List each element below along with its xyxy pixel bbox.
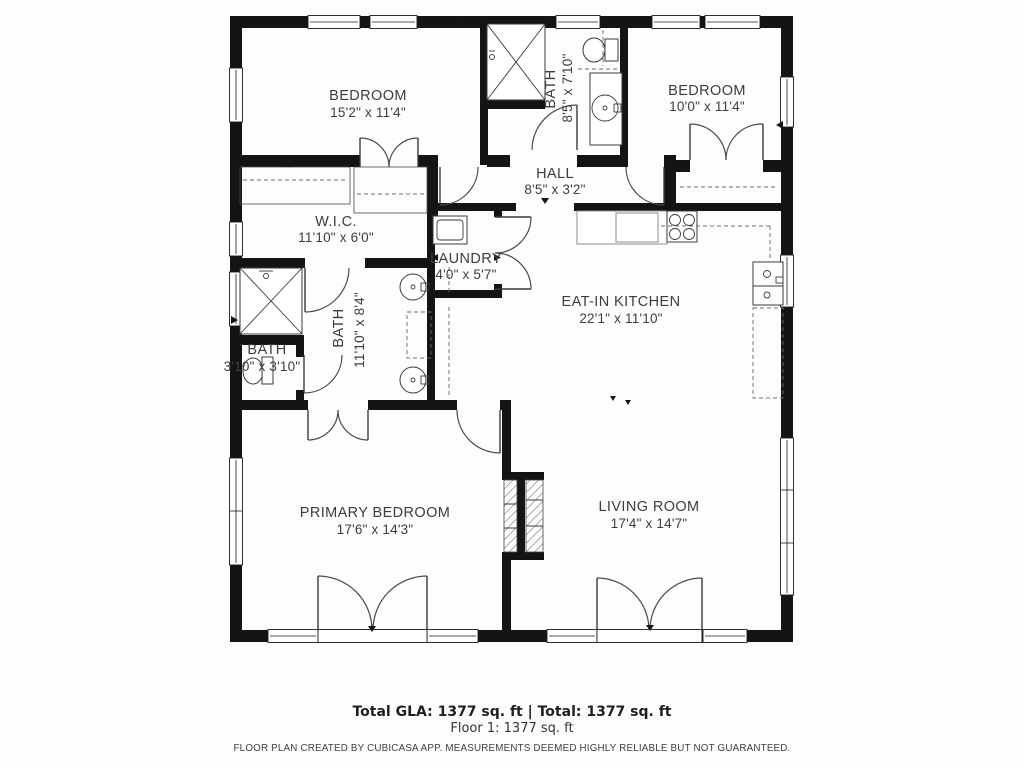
wall-segment — [368, 400, 457, 410]
patio-double-door — [597, 578, 702, 630]
room-label-laundry: LAUNDRY — [430, 251, 502, 267]
footer: Total GLA: 1377 sq. ft | Total: 1377 sq.… — [234, 704, 791, 754]
room-dims-living: 17'4" x 14'7" — [611, 516, 688, 531]
wall-segment — [427, 290, 502, 298]
wall-segment — [487, 155, 510, 167]
wall-segment — [502, 400, 511, 475]
room-dims-kitchen: 22'1" x 11'10" — [579, 311, 662, 326]
floor-plan-page: BEDROOM 15'2" x 11'4" BATH 8'5" x 7'10" … — [0, 0, 1024, 768]
room-label-kitchen: EAT-IN KITCHEN — [562, 294, 681, 310]
room-label-hall: HALL — [536, 166, 574, 182]
room-label-bedroom1: BEDROOM — [329, 88, 407, 104]
closet — [240, 167, 350, 204]
disclaimer-text: FLOOR PLAN CREATED BY CUBICASA APP. MEAS… — [234, 743, 791, 754]
direction-marker — [610, 396, 616, 401]
room-dims-laundry: 4'0" x 5'7" — [435, 267, 496, 282]
direction-marker — [541, 198, 549, 204]
floor-plan-drawing: BEDROOM 15'2" x 11'4" BATH 8'5" x 7'10" … — [0, 0, 1024, 768]
wall-segment — [664, 155, 676, 211]
room-dims-hall: 8'5" x 3'2" — [524, 182, 585, 197]
double-door — [308, 410, 368, 440]
door-threshold — [318, 630, 427, 643]
room-dims-bath1: 8'5" x 7'10" — [560, 54, 575, 123]
counter-dashed — [753, 308, 783, 398]
room-label-bedroom2: BEDROOM — [668, 83, 746, 99]
kitchen-sink-icon — [753, 262, 783, 305]
wall-segment — [418, 155, 438, 167]
room-dims-primary: 17'6" x 14'3" — [337, 522, 414, 537]
wall-segment — [428, 203, 516, 211]
closet-double-door — [360, 138, 418, 167]
wall-segment — [502, 557, 511, 632]
door — [457, 410, 500, 453]
stairs-flight — [504, 480, 517, 552]
stairs-flight — [526, 480, 543, 552]
room-label-living: LIVING ROOM — [598, 499, 699, 515]
wall-segment — [236, 400, 308, 410]
room-label-bath1: BATH — [543, 69, 559, 108]
room-dims-bath3: 3'10" x 3'10" — [224, 359, 301, 374]
wall-segment — [517, 478, 525, 554]
room-label-primary: PRIMARY BEDROOM — [300, 505, 451, 521]
stove-icon — [667, 211, 697, 242]
direction-marker — [776, 121, 783, 129]
laundry-fixtures — [433, 216, 467, 244]
room-label-bath3: BATH — [247, 342, 286, 358]
kitchen-appliance — [616, 213, 658, 242]
room-dims-wic: 11'10" x 6'0" — [298, 230, 374, 245]
closet — [354, 167, 427, 213]
toilet-icon — [583, 38, 618, 62]
room-label-wic: W.I.C. — [315, 214, 357, 230]
wall-segment — [236, 155, 360, 167]
floor-area-text: Floor 1: 1377 sq. ft — [450, 721, 573, 736]
wall-segment — [483, 100, 545, 109]
room-label-bath2: BATH — [331, 308, 347, 347]
wall-segment — [676, 160, 690, 172]
shower-icon — [240, 268, 302, 334]
wall-segment — [494, 203, 502, 217]
door — [305, 268, 349, 312]
room-dims-bedroom1: 15'2" x 11'4" — [330, 105, 406, 120]
wall-segment — [431, 167, 438, 217]
direction-marker — [625, 400, 631, 405]
shower-icon — [487, 24, 545, 100]
door — [626, 167, 664, 205]
total-area-text: Total GLA: 1377 sq. ft | Total: 1377 sq.… — [352, 704, 671, 720]
washer-icon — [433, 216, 467, 244]
door — [304, 355, 342, 393]
patio-double-door — [318, 576, 427, 630]
wall-segment — [664, 203, 793, 211]
door — [440, 167, 478, 205]
room-dims-bath2: 11'10" x 8'4" — [352, 292, 367, 368]
wall-segment — [365, 258, 435, 268]
wall-segment — [236, 258, 305, 268]
closet-double-door — [690, 124, 763, 160]
door-threshold — [597, 630, 702, 643]
room-dims-bedroom2: 10'0" x 11'4" — [669, 99, 745, 114]
wall-segment — [296, 335, 304, 357]
bathroom-sink-icon — [400, 274, 431, 393]
wall-segment — [763, 160, 790, 172]
wall-segment — [574, 203, 666, 211]
